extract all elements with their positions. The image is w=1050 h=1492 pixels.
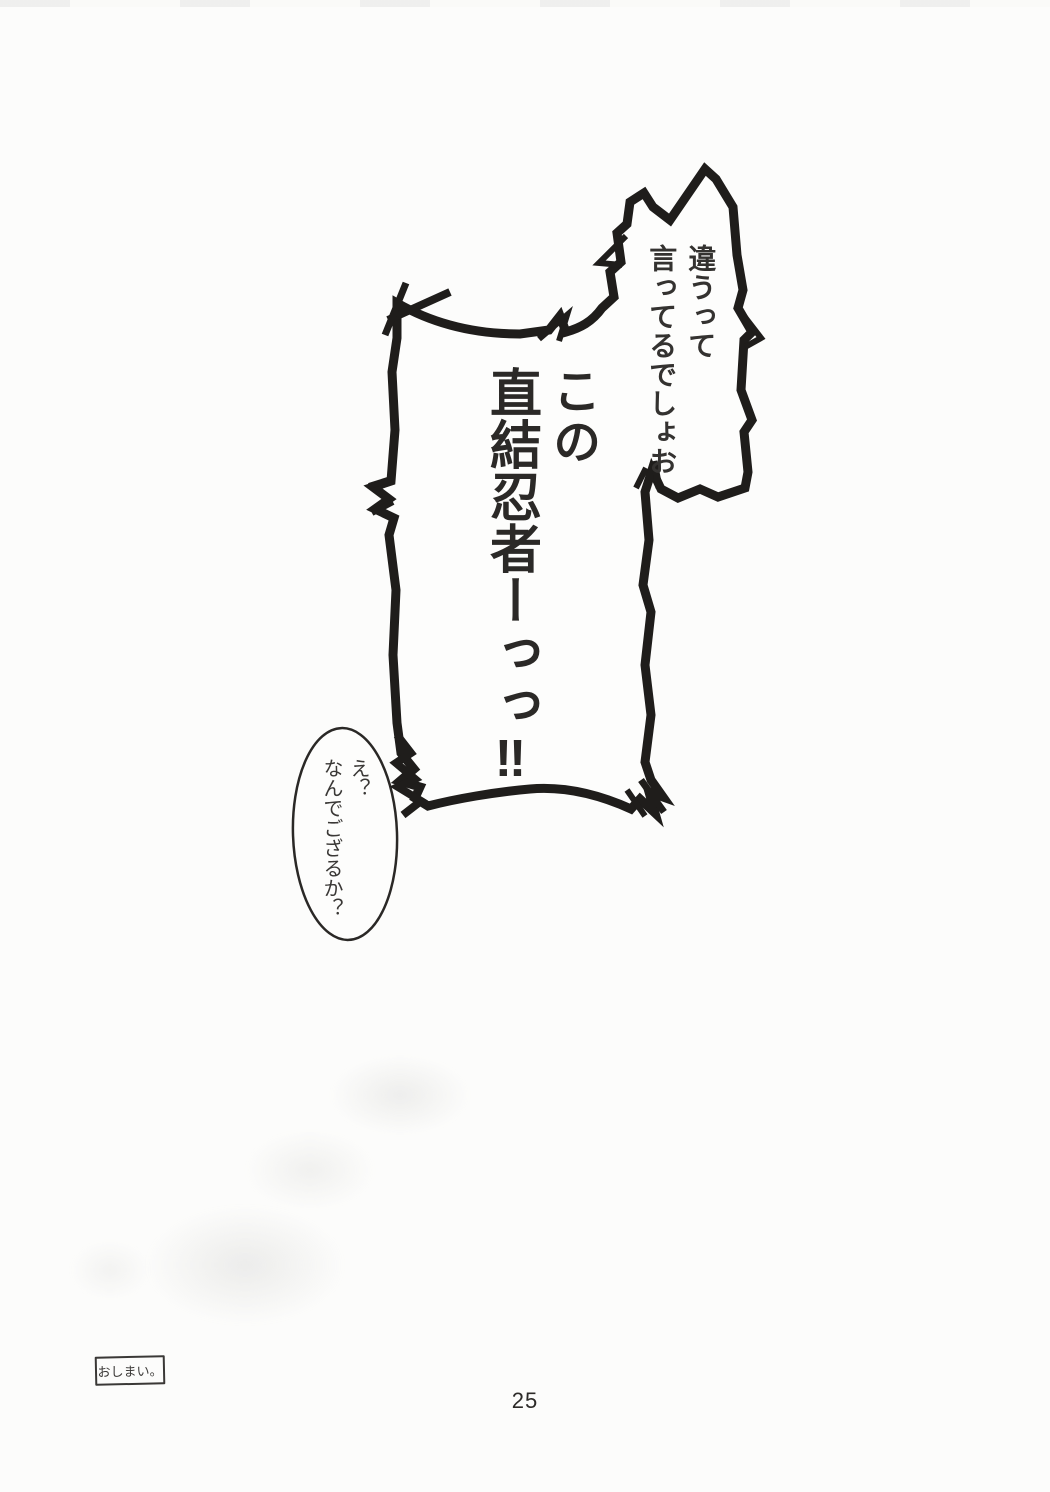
reply-line-2: なんでござるか？ bbox=[317, 758, 344, 928]
shout-balloon-small-text: 違うって 言ってるでしょお bbox=[642, 244, 720, 474]
shout-small-line-1: 違うって bbox=[681, 244, 720, 474]
end-note-box: おしまい。 bbox=[95, 1355, 166, 1385]
reply-balloon-text: え？ なんでござるか？ bbox=[317, 758, 371, 928]
reply-line-1: え？ bbox=[344, 758, 371, 928]
shout-large-line-2: 直結忍者ーっっ‼ bbox=[478, 366, 541, 786]
page-number: 25 bbox=[0, 1388, 1050, 1414]
shout-large-line-1: この bbox=[541, 366, 600, 786]
shout-small-line-2: 言ってるでしょお bbox=[642, 244, 681, 474]
manga-page: 違うって 言ってるでしょお この 直結忍者ーっっ‼ え？ なんでござるか？ おし… bbox=[0, 0, 1050, 1492]
shout-balloon-large-text: この 直結忍者ーっっ‼ bbox=[478, 366, 600, 786]
end-note-label: おしまい。 bbox=[97, 1360, 162, 1380]
